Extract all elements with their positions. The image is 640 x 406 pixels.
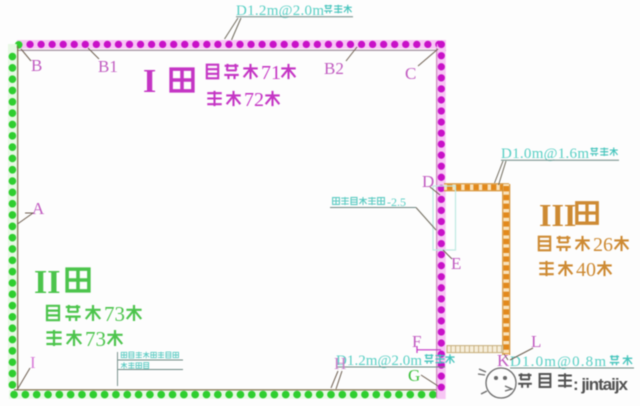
svg-text:G: G: [408, 366, 420, 385]
svg-text:26: 26: [593, 234, 613, 256]
svg-text:72: 72: [244, 89, 264, 111]
svg-text:A: A: [32, 199, 45, 218]
svg-text:I: I: [143, 63, 156, 100]
svg-text:73: 73: [104, 302, 125, 326]
svg-text:III: III: [539, 197, 576, 233]
svg-text:H: H: [334, 354, 346, 373]
svg-text:B: B: [31, 56, 42, 75]
svg-text:K: K: [497, 351, 510, 370]
svg-text:B2: B2: [324, 59, 344, 78]
svg-text:B1: B1: [98, 57, 118, 76]
svg-text:40: 40: [576, 259, 596, 281]
svg-text:II: II: [34, 264, 60, 301]
svg-text:: jintaijx: : jintaijx: [573, 375, 629, 394]
svg-text:I: I: [30, 353, 36, 372]
svg-text:D: D: [422, 172, 434, 191]
svg-text:C: C: [405, 64, 416, 83]
svg-text:L: L: [531, 332, 541, 351]
svg-text:D1.0m@1.6m: D1.0m@1.6m: [501, 146, 589, 162]
svg-text:-2.5: -2.5: [387, 195, 406, 209]
svg-text:73: 73: [85, 327, 106, 351]
svg-text:E: E: [451, 254, 461, 273]
svg-text:71: 71: [261, 62, 281, 84]
